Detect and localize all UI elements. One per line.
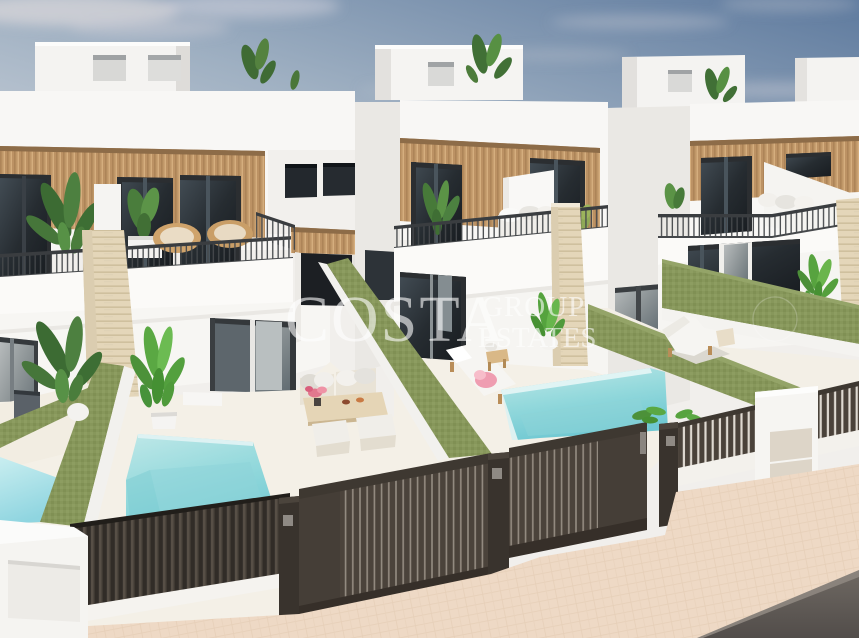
svg-text:ESTATES: ESTATES <box>478 322 597 354</box>
svg-text:COSTA: COSTA <box>285 283 506 356</box>
svg-text:GROUP: GROUP <box>482 291 585 323</box>
